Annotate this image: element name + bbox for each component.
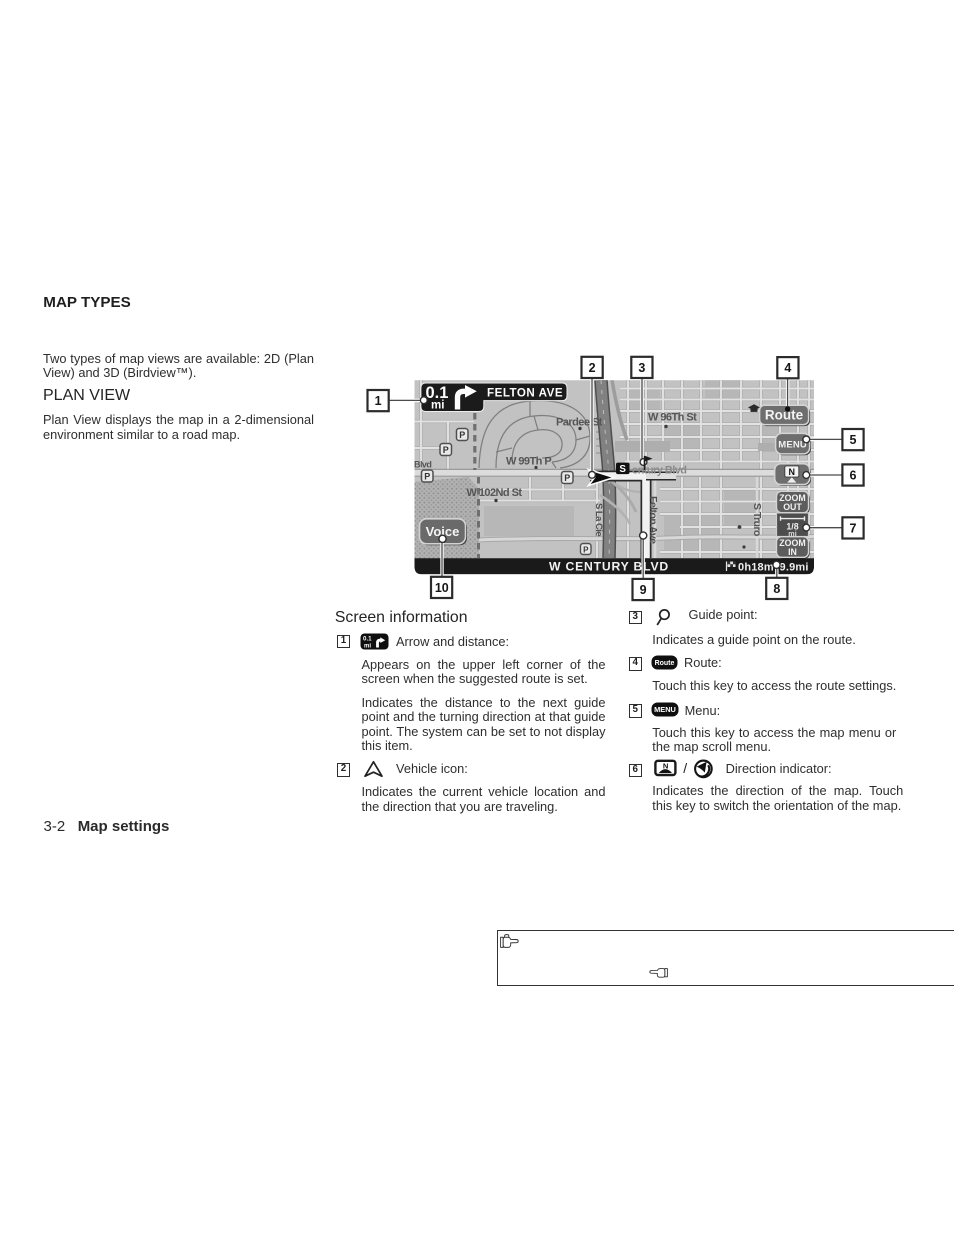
svg-text:P: P (459, 430, 465, 440)
svg-text:9: 9 (640, 583, 647, 597)
svg-text:entury Blvd: entury Blvd (632, 464, 686, 476)
svg-text:0h18m: 0h18m (738, 561, 774, 573)
svg-text:N: N (789, 467, 796, 477)
svg-text:W CENTURY BLVD: W CENTURY BLVD (549, 560, 669, 574)
svg-text:mi: mi (431, 400, 444, 412)
svg-text:W 99Th P: W 99Th P (506, 456, 551, 468)
svg-text:Felton Ave: Felton Ave (647, 496, 659, 544)
svg-text:4: 4 (784, 361, 791, 375)
svg-text:P: P (564, 473, 570, 483)
svg-text:Route: Route (765, 408, 804, 423)
svg-text:0.1: 0.1 (363, 636, 372, 643)
svg-text:6: 6 (850, 468, 857, 482)
svg-text:MENU: MENU (654, 705, 676, 714)
svg-text:1: 1 (375, 394, 382, 408)
svg-text:Blvd: Blvd (414, 460, 431, 470)
svg-text:S La Cie: S La Cie (593, 503, 604, 536)
svg-text:P: P (424, 472, 430, 482)
svg-text:Pardee St: Pardee St (556, 417, 603, 429)
svg-text:W 96Th St: W 96Th St (648, 412, 697, 424)
svg-text:W 102Nd St: W 102Nd St (467, 487, 523, 499)
svg-text:mi: mi (364, 644, 371, 650)
svg-text:2: 2 (589, 361, 596, 375)
svg-text:3: 3 (638, 361, 645, 375)
svg-text:10: 10 (435, 581, 449, 595)
svg-text:9.9mi: 9.9mi (780, 561, 809, 573)
svg-text:N: N (662, 761, 667, 770)
svg-text:OUT: OUT (783, 502, 802, 512)
svg-text:FELTON AVE: FELTON AVE (487, 386, 563, 399)
svg-text:IN: IN (788, 547, 797, 557)
svg-text:7: 7 (850, 521, 857, 535)
svg-text:P: P (443, 445, 449, 455)
svg-text:P: P (583, 545, 589, 554)
svg-text:Route: Route (655, 660, 675, 667)
svg-text:5: 5 (850, 433, 857, 447)
svg-text:8: 8 (773, 582, 780, 596)
svg-text:S Truro: S Truro (751, 503, 763, 536)
svg-text:S: S (619, 464, 626, 475)
